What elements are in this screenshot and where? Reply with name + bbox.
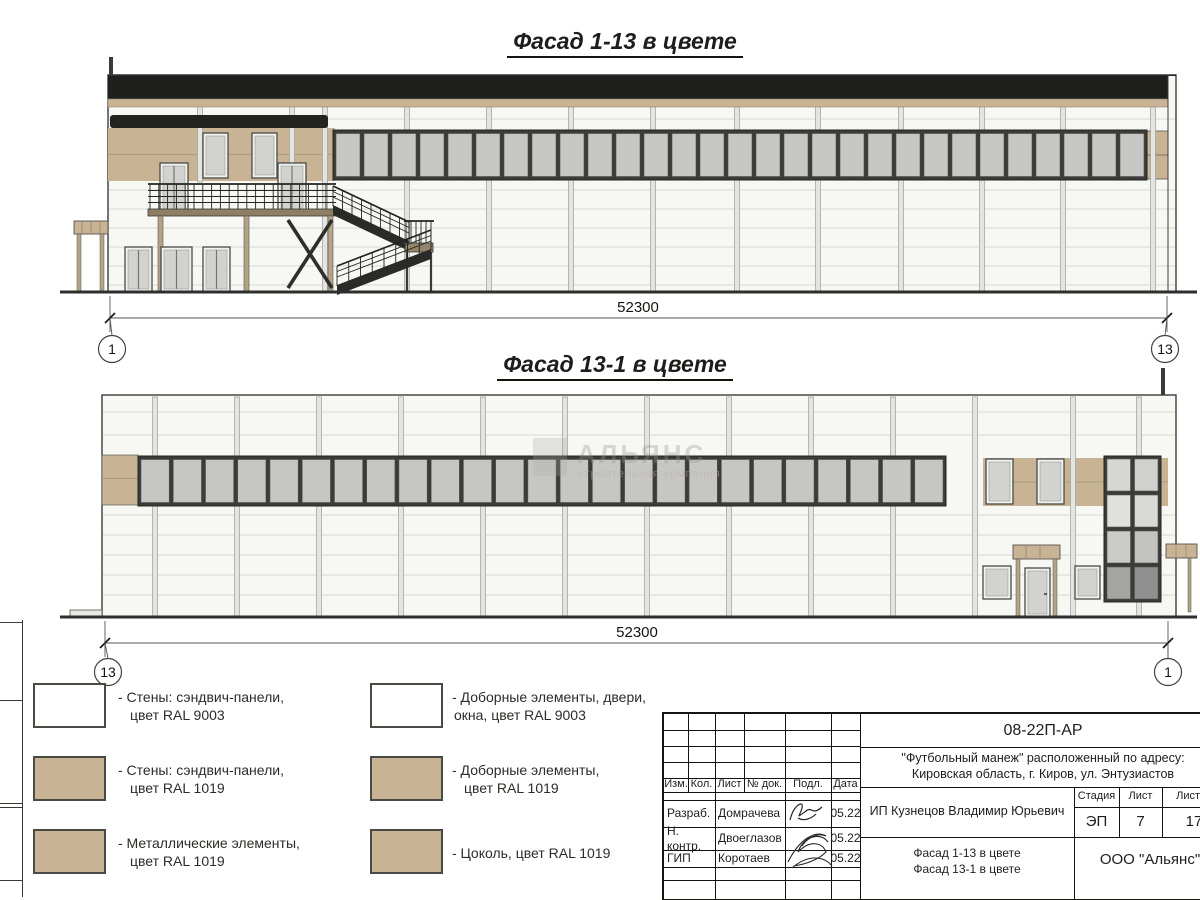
legend-label: - Цоколь, цвет RAL 1019 [452,844,610,862]
legend-label: - Стены: сэндвич-панели,цвет RAL 1019 [118,761,284,797]
facade1-axis-right: 13 [1157,341,1173,357]
facade-drawings [60,57,1197,617]
tb-role-gip: ГИП [664,850,715,867]
legend-label: - Стены: сэндвич-панели,цвет RAL 9003 [118,688,284,724]
watermark-line2: строительная компания [578,468,721,480]
tb-organization: ООО "Альянс" [1074,848,1200,872]
tb-sheets-label: Листов [1162,787,1200,807]
watermark: АЛЬЯНС строительная компания [533,438,721,480]
signature-developer [790,804,822,820]
frame-margin-tick [0,807,22,808]
tb-doc-number: 08-22П-АР [860,714,1200,747]
frame-margin-line [22,620,23,897]
tb-header-doc: № док. [744,778,785,792]
drawing-sheet: АЛЬЯНС строительная компания 52300 1 13 [0,0,1200,900]
facade2-axis-right: 1 [1164,664,1172,680]
tb-drawing-title-line1: Фасад 1-13 в цвете [860,845,1074,861]
legend-swatch-ral1019 [370,756,443,801]
facade1-title: Фасад 1-13 в цвете [400,28,850,55]
tb-stage-value: ЭП [1074,807,1119,837]
tb-client: ИП Кузнецов Владимир Юрьевич [860,787,1074,837]
tb-sheet-label: Лист [1119,787,1162,807]
legend-swatch-ral9003 [370,683,443,728]
signatures [782,794,838,876]
tb-drawing-title-line2: Фасад 13-1 в цвете [860,861,1074,877]
legend-label: - Доборные элементы,цвет RAL 1019 [452,761,599,797]
signature-gip [788,834,832,868]
frame-margin-tick [0,622,22,623]
facade2-title: Фасад 13-1 в цвете [390,351,840,378]
tb-header-list: Лист [715,778,744,792]
tb-sheet-value: 7 [1119,807,1162,837]
legend-label: - Доборные элементы, двери,окна, цвет RA… [452,688,646,724]
watermark-line1: АЛЬЯНС [577,439,706,469]
facade1-dimension-value: 52300 [617,299,659,316]
facade2-axis-left: 13 [100,664,116,680]
tb-header-kol: Кол. [688,778,715,792]
tb-project-line1: "Футбольный манеж" расположенный по адре… [860,750,1200,767]
legend-swatch-ral1019 [33,756,106,801]
facade2-dimension: 52300 13 1 [95,621,1182,686]
tb-name-developer: Домрачева [715,800,785,827]
tb-sheets-value: 17 [1162,807,1200,837]
title-block: Изм. Кол. Лист № док. Подл. Дата Разраб.… [662,712,1200,900]
frame-margin-tick [0,880,22,881]
legend-swatch-ral9003 [33,683,106,728]
frame-margin-tick [0,700,22,701]
legend-swatch-ral1019 [33,829,106,874]
tb-header-podp: Подл. [785,778,831,792]
facade1-axis-left: 1 [108,341,116,357]
frame-margin-tick [0,803,22,804]
legend-label: - Металлические элементы,цвет RAL 1019 [118,834,300,870]
tb-role-ncontrol: Н. контр. [664,827,715,850]
tb-name-gip: Коротаев [715,850,785,867]
legend-swatch-ral1019 [370,829,443,874]
tb-header-izm: Изм. [664,778,688,792]
watermark-logo [533,438,567,476]
tb-name-ncontrol: Двоеглазов [715,827,785,850]
tb-stage-label: Стадия [1074,787,1119,807]
facade2-dimension-value: 52300 [616,624,658,641]
tb-project-line2: Кировская область, г. Киров, ул. Энтузиа… [860,766,1200,783]
tb-header-data: Дата [831,778,860,792]
